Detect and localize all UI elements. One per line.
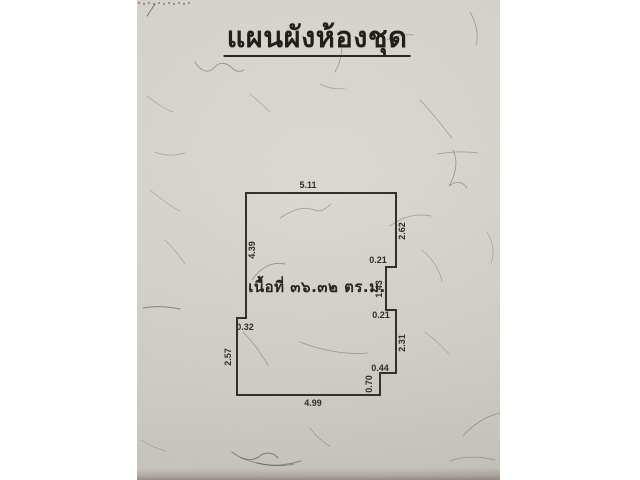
- dimension-left-step: 0.32: [236, 322, 254, 332]
- dimension-right-bottom: 0.70: [364, 375, 374, 393]
- floor-plan-drawing: [137, 0, 500, 480]
- area-label: เนื้อที่ ๓๖.๓๒ ตร.ม.: [248, 275, 385, 299]
- dimension-right-upper: 2.62: [397, 222, 407, 240]
- scanned-paper-photo: แผนผังห้องชุด 5.11 4.39 2.62 0.21 1.43 0…: [137, 0, 500, 480]
- dimension-left-upper: 4.39: [247, 241, 257, 259]
- dimension-right-notch-lower: 0.21: [372, 310, 390, 320]
- floor-plan: 5.11 4.39 2.62 0.21 1.43 0.21 2.31 0.44 …: [137, 0, 500, 480]
- dimension-right-lower: 2.31: [397, 334, 407, 352]
- dimension-bottom: 4.99: [304, 398, 322, 408]
- dimension-left-lower: 2.57: [223, 348, 233, 366]
- dimension-right-step: 0.44: [371, 363, 389, 373]
- photo-bottom-shadow: [137, 468, 500, 480]
- dimension-top: 5.11: [299, 180, 316, 190]
- screenshot-root: แผนผังห้องชุด 5.11 4.39 2.62 0.21 1.43 0…: [0, 0, 640, 480]
- dimension-right-notch-upper: 0.21: [369, 255, 387, 265]
